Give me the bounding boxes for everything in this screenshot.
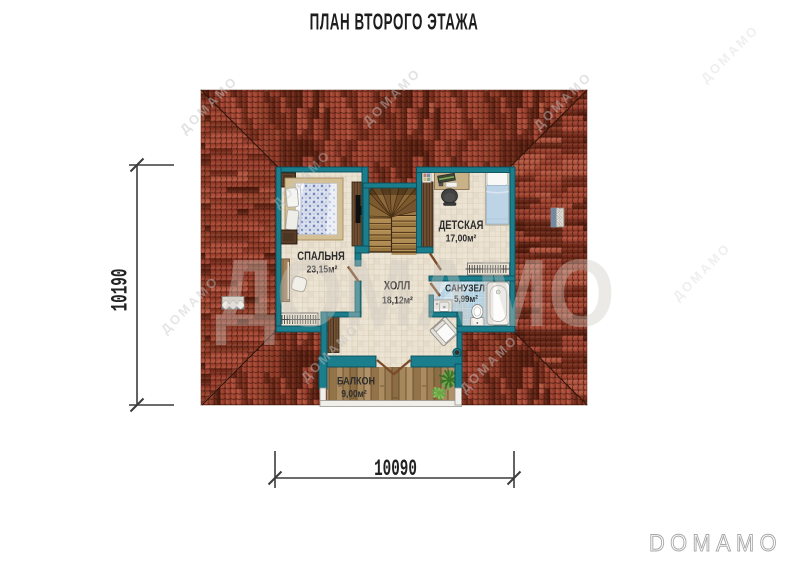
svg-text:ПЛАН ВТОРОГО ЭТАЖА: ПЛАН ВТОРОГО ЭТАЖА [310,10,479,36]
svg-text:9,00м²: 9,00м² [341,388,366,399]
svg-text:БАЛКОН: БАЛКОН [337,376,375,388]
svg-text:10190: 10190 [107,269,133,312]
svg-text:ДЕТСКАЯ: ДЕТСКАЯ [439,219,484,232]
svg-text:ДОМАМО: ДОМАМО [215,240,615,347]
svg-text:10090: 10090 [374,456,417,482]
svg-text:DOMAMO: DOMAMO [649,530,782,557]
